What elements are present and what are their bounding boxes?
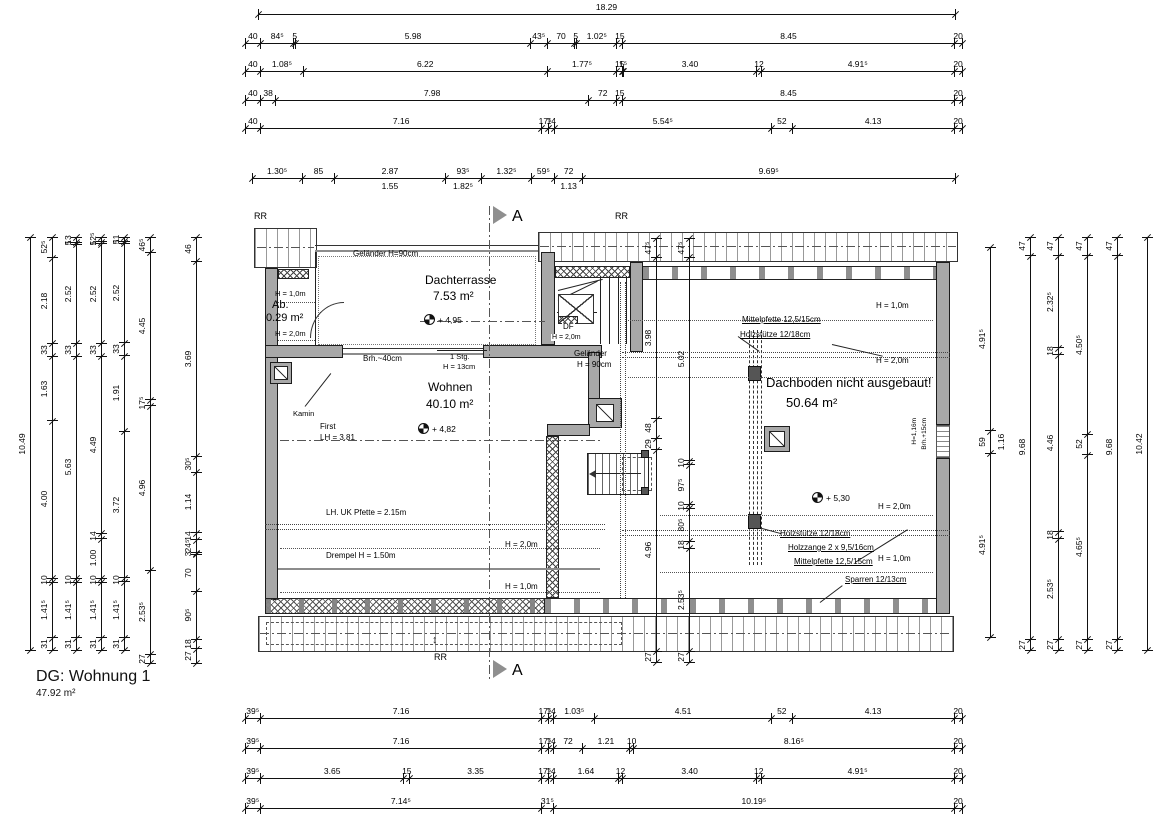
- rr-label-top-mid: RR: [615, 212, 628, 221]
- stair-tread-1: [600, 276, 601, 344]
- terrace-step-line: [437, 350, 487, 351]
- holzstuetze-post-lower: [748, 514, 761, 529]
- level-mark-wohnen: + 4,82: [418, 423, 456, 434]
- section-a-top-label: A: [512, 209, 523, 226]
- uk-pfette-line: [265, 524, 605, 530]
- rr-label-top-left: RR: [254, 212, 267, 221]
- stufe-height: H = 13cm: [443, 363, 475, 371]
- holzstuetze-low: Holzstütze 12/18cm: [780, 530, 850, 538]
- df-height: H = 2,0m: [551, 334, 582, 341]
- room-area-dachboden: 50.64 m²: [786, 396, 837, 410]
- roof-edge-band-top-left: [254, 228, 317, 268]
- plan-title: DG: Wohnung 1: [36, 668, 150, 686]
- floorplan-canvas: ↕: [0, 0, 1168, 830]
- gutter-arrow-icon: ↕: [432, 634, 438, 646]
- stair-newel-top: [641, 450, 649, 458]
- section-a-bottom-label: A: [512, 663, 523, 680]
- kamin-leader-line: [305, 373, 332, 407]
- stair-direction-arrow-icon: [589, 470, 596, 478]
- stair-tread-4: [626, 276, 627, 344]
- room-label-dachterrasse: Dachterrasse: [425, 274, 496, 287]
- wall-stair-left: [541, 252, 555, 345]
- wall-right-lower: [936, 458, 950, 614]
- gelaender-terrasse-label: Geländer H=90cm: [353, 250, 418, 258]
- level-symbol-icon: [812, 492, 823, 503]
- terrace-floor-outline: [318, 256, 536, 345]
- stair-tread-2: [609, 276, 610, 344]
- fenster-height-right: H=1,16m: [912, 418, 919, 445]
- level-symbol-icon: [424, 314, 435, 325]
- window-right-wall: [936, 425, 950, 458]
- rr-label-bottom: RR: [434, 653, 447, 662]
- terrace-railing-top: [315, 245, 538, 252]
- section-marker-top-icon: [493, 206, 507, 224]
- wall-right-upper: [936, 262, 950, 425]
- roof-edge-dashed-inner: [266, 622, 622, 645]
- wall-bottom-right-band: [545, 598, 936, 614]
- roof-edge-band-top-centerline: [540, 246, 956, 247]
- ab-height-1: H = 1,0m: [275, 290, 306, 298]
- chimney-flue-symbol: [596, 404, 614, 422]
- vline-dachboden-left: [620, 282, 626, 598]
- window-ab-top: [278, 269, 309, 279]
- drempel-label: Drempel H = 1.50m: [326, 552, 396, 560]
- hline-dachboden-h1-low: [660, 572, 933, 573]
- gelaender-stair-1: Geländer: [574, 350, 607, 358]
- holzstuetze-post-upper: [748, 366, 761, 381]
- kamin-symbol: [274, 366, 288, 380]
- height-left-2: H = 1,0m: [505, 583, 538, 591]
- wall-stair-right: [630, 262, 643, 352]
- hline-wohnen-h1: [280, 592, 600, 593]
- height-right-2: H = 2,0m: [876, 357, 909, 365]
- stair-newel-bottom: [641, 487, 649, 495]
- revision-box-symbol: [769, 431, 785, 447]
- stair-lower-dashed: [622, 457, 652, 491]
- level-mark-terrasse: + 4,95: [424, 314, 462, 325]
- wall-strip-hatched: [546, 436, 559, 598]
- height-left-1: H = 2,0m: [505, 541, 538, 549]
- roof-edge-band-top: [538, 232, 958, 262]
- plan-area-total: 47.92 m²: [36, 688, 75, 699]
- kamin-label: Kamin: [293, 410, 314, 418]
- level-mark-dachboden: + 5,30: [812, 492, 850, 503]
- stair-tread-3: [618, 276, 619, 344]
- wall-bottom-left-band: [265, 598, 545, 614]
- mittelpfette-top: Mittelpfette 12,5/15cm: [742, 316, 821, 324]
- mittelpfette-low: Mittelpfette 12,5/15cm: [794, 558, 873, 566]
- room-label-ab: Ab.: [272, 300, 289, 312]
- room-area-dachterrasse: 7.53 m²: [433, 290, 474, 303]
- wall-top-dachboden-band: [643, 266, 936, 280]
- room-label-wohnen: Wohnen: [428, 381, 472, 394]
- wall-terrace-bottom-left: [265, 345, 343, 358]
- height-right-3: H = 2,0m: [878, 503, 911, 511]
- first-label: First: [320, 423, 336, 431]
- roof-edge-band-top-left-centerline: [257, 247, 314, 248]
- height-right-4: H = 1,0m: [878, 555, 911, 563]
- holzzange-low: Holzzange 2 x 9,5/16cm: [788, 544, 874, 552]
- hline-dachboden-h2-low: [660, 515, 933, 516]
- fenster-bruestung-right: Brh.+15cm: [922, 418, 929, 450]
- height-right-1: H = 1,0m: [876, 302, 909, 310]
- section-marker-bottom-icon: [493, 660, 507, 678]
- first-height: LH = 3.81: [320, 434, 355, 442]
- uk-pfette-label: LH. UK Pfette = 2.15m: [326, 509, 406, 517]
- room-label-dachboden: Dachboden nicht ausgebaut!: [766, 376, 932, 390]
- level-symbol-icon: [418, 423, 429, 434]
- stair-lower-walkline: [595, 473, 641, 474]
- wall-jog: [547, 424, 590, 436]
- holzstuetze-top: Holzstütze 12/18cm: [740, 331, 810, 339]
- drempel-line: [278, 568, 600, 570]
- stufe-label: 1 Stg.: [450, 353, 470, 361]
- gelaender-stair-2: H = 90cm: [577, 361, 611, 369]
- ab-height-2: H = 2,0m: [275, 330, 306, 338]
- room-area-ab: 0.29 m²: [266, 313, 303, 325]
- df-label: DF: [562, 323, 575, 331]
- hline-ab-h2: [278, 340, 315, 341]
- sparren-label: Sparren 12/13cm: [845, 576, 906, 584]
- hline-wohnen-h2: [280, 548, 600, 549]
- bruestung-terrasse: Brh.~40cm: [363, 355, 402, 363]
- room-area-wohnen: 40.10 m²: [426, 398, 473, 411]
